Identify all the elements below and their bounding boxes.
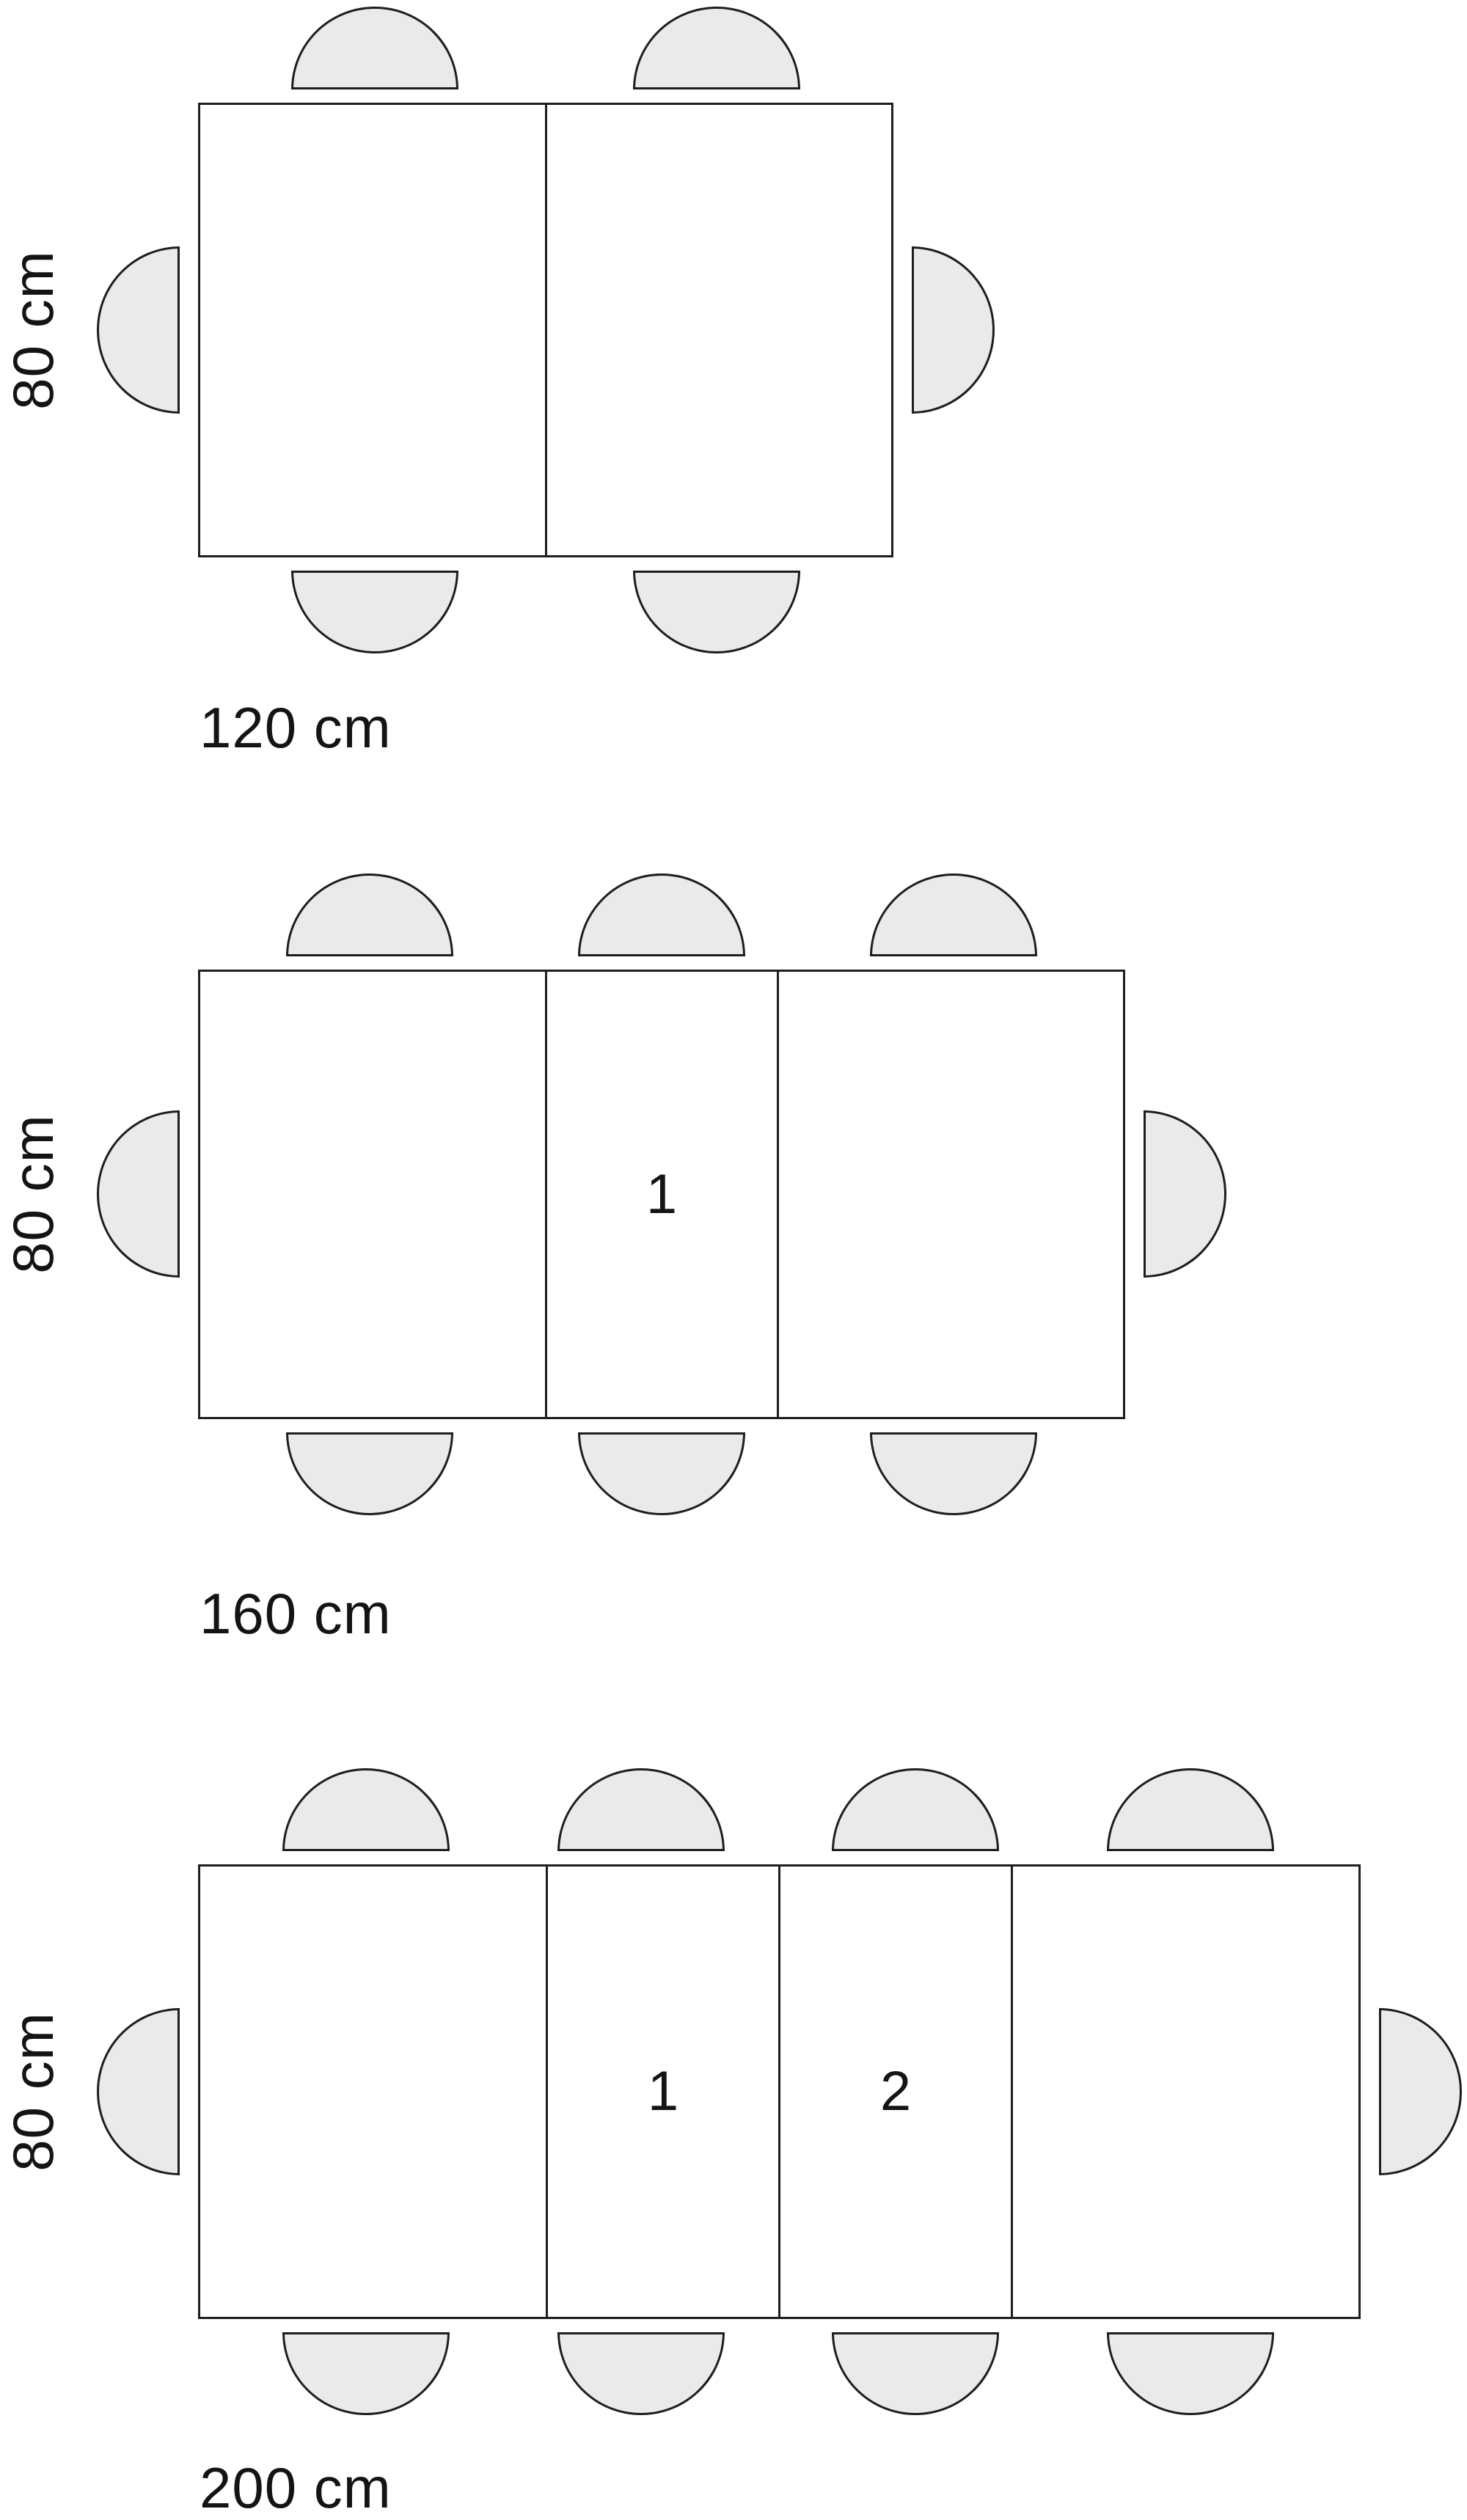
- chair-top-icon: [286, 873, 453, 956]
- chair-bottom-icon: [633, 571, 800, 653]
- chair-bottom-icon: [870, 1432, 1037, 1515]
- table-size-diagram-canvas: 80 cm 120 cm 80 cm: [0, 0, 1467, 2520]
- table-section: [200, 972, 545, 1417]
- chair-bottom-icon: [832, 2332, 999, 2415]
- chair-right-icon: [912, 246, 995, 414]
- chair-bottom-icon: [291, 571, 458, 653]
- section-number: 1: [646, 1167, 677, 1223]
- section-number: 2: [880, 2064, 911, 2120]
- width-label-120: 120 cm: [200, 698, 392, 758]
- chair-bottom-icon: [282, 2332, 450, 2415]
- table-top-160: 1: [198, 970, 1125, 1419]
- chair-top-icon: [832, 1768, 999, 1851]
- chair-bottom-icon: [286, 1432, 453, 1515]
- chair-top-icon: [1107, 1768, 1274, 1851]
- chair-right-icon: [1379, 2008, 1462, 2175]
- table-top-120: [198, 103, 893, 557]
- chair-bottom-icon: [1107, 2332, 1274, 2415]
- chair-left-icon: [97, 2008, 180, 2175]
- table-section: [777, 972, 1124, 1417]
- table-leaf-section: 1: [546, 1867, 778, 2317]
- chair-left-icon: [97, 246, 180, 414]
- table-section: [200, 1867, 546, 2317]
- chair-bottom-icon: [557, 2332, 725, 2415]
- table-leaf-section: 1: [545, 972, 777, 1417]
- depth-label-120: 80 cm: [4, 250, 62, 409]
- depth-label-160: 80 cm: [4, 1114, 62, 1273]
- chair-top-icon: [291, 7, 458, 89]
- table-section: [200, 105, 545, 555]
- width-label-160: 160 cm: [200, 1584, 392, 1644]
- chair-top-icon: [633, 7, 800, 89]
- chair-top-icon: [870, 873, 1037, 956]
- table-section: [1011, 1867, 1358, 2317]
- section-number: 1: [648, 2064, 678, 2120]
- chair-top-icon: [282, 1768, 450, 1851]
- table-top-200: 1 2: [198, 1864, 1361, 2319]
- width-label-200: 200 cm: [200, 2458, 392, 2519]
- chair-left-icon: [97, 1110, 180, 1278]
- depth-label-200: 80 cm: [4, 2012, 62, 2171]
- chair-top-icon: [557, 1768, 725, 1851]
- chair-bottom-icon: [578, 1432, 745, 1515]
- chair-right-icon: [1144, 1110, 1226, 1278]
- table-section: [545, 105, 892, 555]
- chair-top-icon: [578, 873, 745, 956]
- table-leaf-section: 2: [778, 1867, 1011, 2317]
